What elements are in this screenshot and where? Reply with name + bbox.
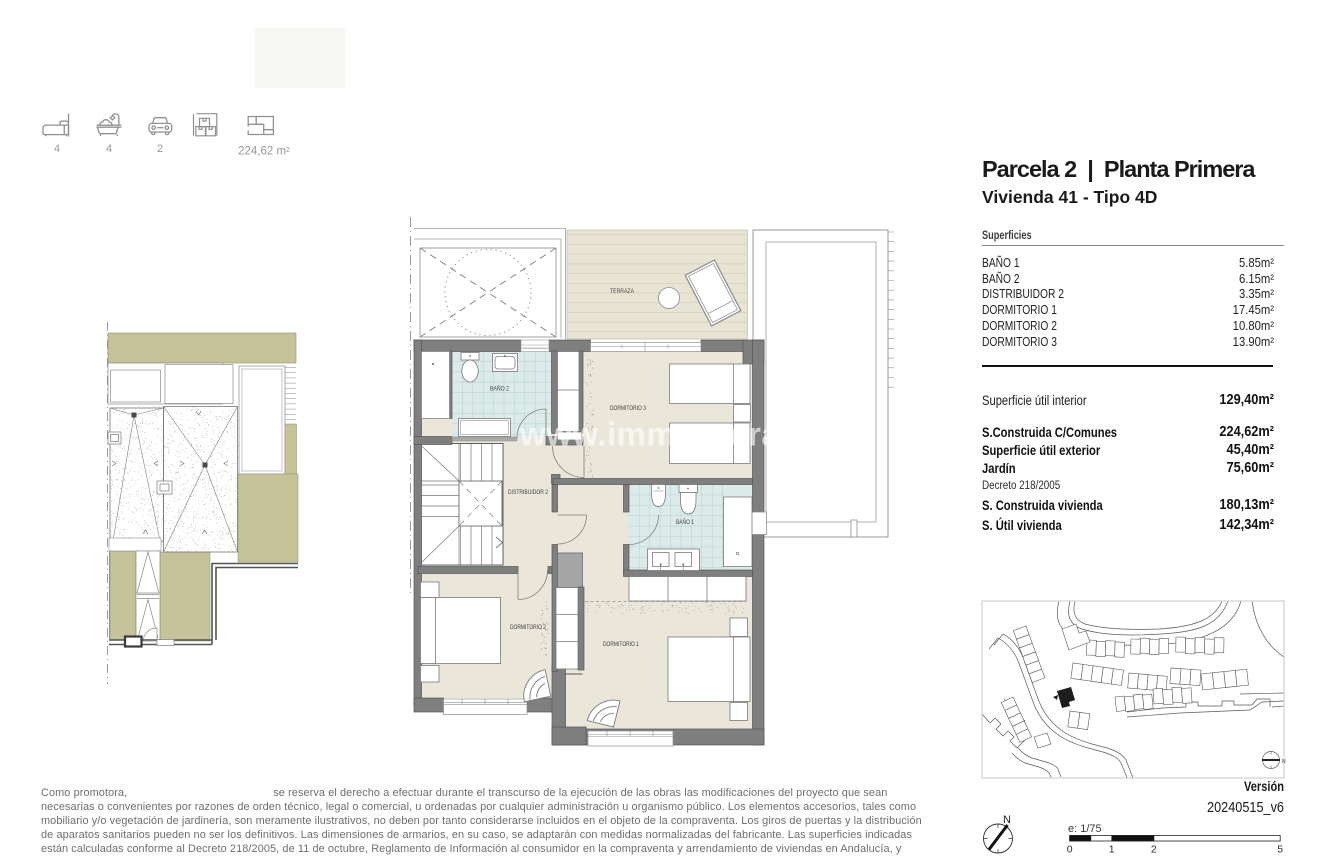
svg-text:4: 4 (54, 143, 60, 155)
svg-text:N: N (1003, 814, 1011, 826)
svg-text:DISTRIBUIDOR 2: DISTRIBUIDOR 2 (508, 489, 548, 496)
svg-text:2: 2 (1151, 844, 1157, 856)
svg-text:0: 0 (1067, 844, 1073, 856)
svg-text:DORMITORIO 3: DORMITORIO 3 (610, 405, 646, 412)
svg-text:DORMITORIO 1: DORMITORIO 1 (603, 641, 639, 648)
svg-text:www.immontera.com: www.immontera.com (519, 416, 859, 453)
svg-text:20240515_v6: 20240515_v6 (1207, 800, 1284, 816)
svg-text:BAÑO 1: BAÑO 1 (676, 517, 694, 526)
svg-text:2: 2 (157, 143, 163, 155)
svg-text:BAÑO 2: BAÑO 2 (490, 384, 509, 393)
svg-text:N: N (1282, 759, 1286, 765)
svg-text:5: 5 (1277, 844, 1283, 856)
svg-text:TERRAZA: TERRAZA (610, 288, 635, 295)
svg-text:224,62 m²: 224,62 m² (238, 146, 290, 158)
svg-text:4: 4 (106, 143, 112, 155)
svg-text:Versión: Versión (1244, 779, 1284, 794)
svg-text:1: 1 (1109, 844, 1115, 856)
svg-text:DORMITORIO 2: DORMITORIO 2 (510, 624, 546, 631)
svg-text:e: 1/75: e: 1/75 (1068, 823, 1102, 835)
